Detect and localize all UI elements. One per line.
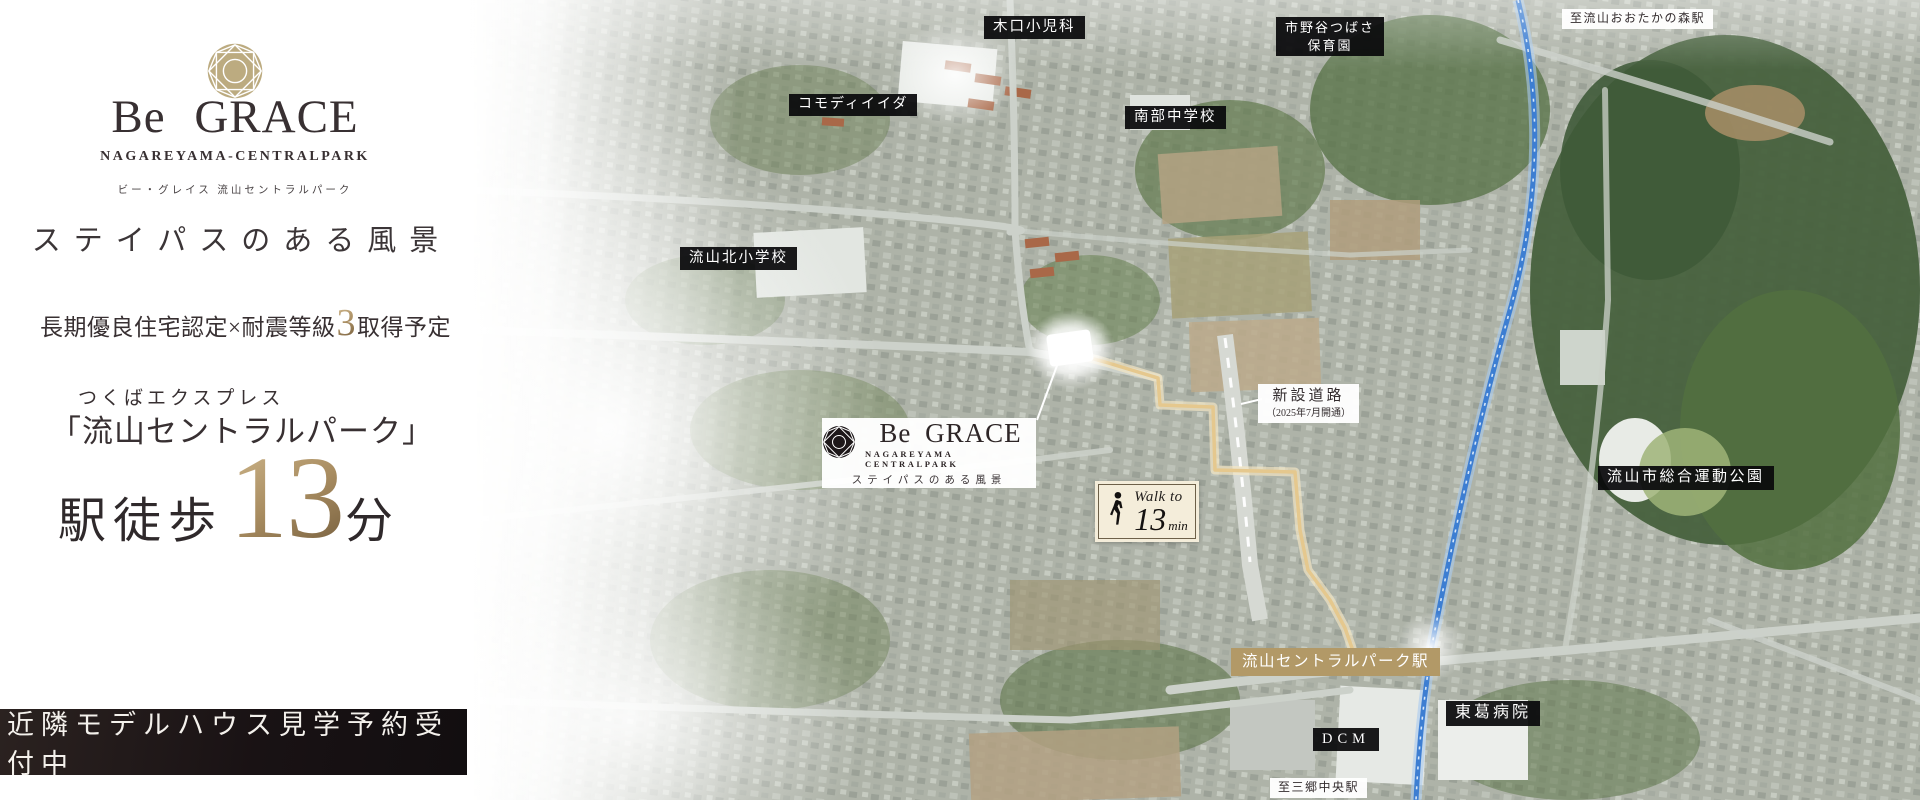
- map-label-nursery: 市野谷つばさ 保育園: [1276, 17, 1384, 56]
- pedestrian-icon: [1106, 490, 1128, 533]
- brand-kana: ビー・グレイス 流山セントラルパーク: [0, 182, 470, 197]
- map-label-new-road: 新設道路 （2025年7月開通）: [1258, 384, 1359, 423]
- brand-tagline: ステイパスのある風景: [0, 217, 470, 259]
- brand-panel: Be GRACE NAGAREYAMA-CENTRALPARK ビー・グレイス …: [0, 0, 470, 800]
- site-label-box: Be GRACE NAGAREYAMA CENTRALPARK ステイパスのある…: [822, 418, 1036, 488]
- site-box-subtitle: NAGAREYAMA CENTRALPARK: [865, 449, 1036, 469]
- walk-prefix: 駅徒歩: [58, 481, 223, 551]
- map-label-otakanomori: 至流山おおたかの森駅: [1562, 9, 1713, 29]
- site-box-tagline: ステイパスのある風景: [852, 472, 1007, 487]
- map-label-centralpark-station: 流山セントラルパーク駅: [1231, 648, 1440, 676]
- brand-title: Be GRACE: [0, 92, 470, 144]
- walk-suffix: 分: [345, 481, 400, 551]
- walk-time-statement: 駅徒歩 13 分: [58, 448, 400, 551]
- map-label-misato-chuo: 至三郷中央駅: [1270, 778, 1367, 798]
- quality-prefix: 長期優良住宅認定×耐震等級: [40, 308, 335, 342]
- site-gem-icon: [822, 425, 856, 464]
- map-label-commodi-iida: コモディイイダ: [789, 94, 917, 116]
- map-label-sports-park: 流山市総合運動公園: [1598, 466, 1774, 490]
- quality-suffix: 取得予定: [357, 308, 451, 342]
- quality-statement: 長期優良住宅認定×耐震等級 3 取得予定: [40, 308, 451, 342]
- walk-badge-unit: min: [1168, 519, 1188, 532]
- map-label-tokatsu-hospital: 東葛病院: [1446, 701, 1540, 726]
- model-house-cta-banner[interactable]: 近隣モデルハウス見学予約受付中: [0, 709, 467, 775]
- map-label-dcm: DCM: [1313, 728, 1379, 751]
- hero-banner: 木口小児科 市野谷つばさ 保育園 至流山おおたかの森駅 コモディイイダ 南部中学…: [0, 0, 1920, 800]
- walk-time-badge: Walk to 13 min: [1095, 481, 1199, 542]
- walk-badge-minutes: 13: [1134, 505, 1166, 534]
- site-box-title: Be GRACE: [879, 420, 1021, 447]
- walk-minutes: 13: [229, 448, 343, 548]
- map-label-nanbu-junior-high: 南部中学校: [1125, 106, 1226, 129]
- property-site: [1028, 318, 1112, 378]
- brand-subtitle: NAGAREYAMA-CENTRALPARK: [0, 149, 470, 165]
- quality-grade-number: 3: [336, 308, 356, 338]
- map-label-pediatric-clinic: 木口小児科: [984, 16, 1085, 39]
- aerial-map: 木口小児科 市野谷つばさ 保育園 至流山おおたかの森駅 コモディイイダ 南部中学…: [470, 0, 1920, 800]
- map-label-kita-elementary: 流山北小学校: [680, 247, 797, 270]
